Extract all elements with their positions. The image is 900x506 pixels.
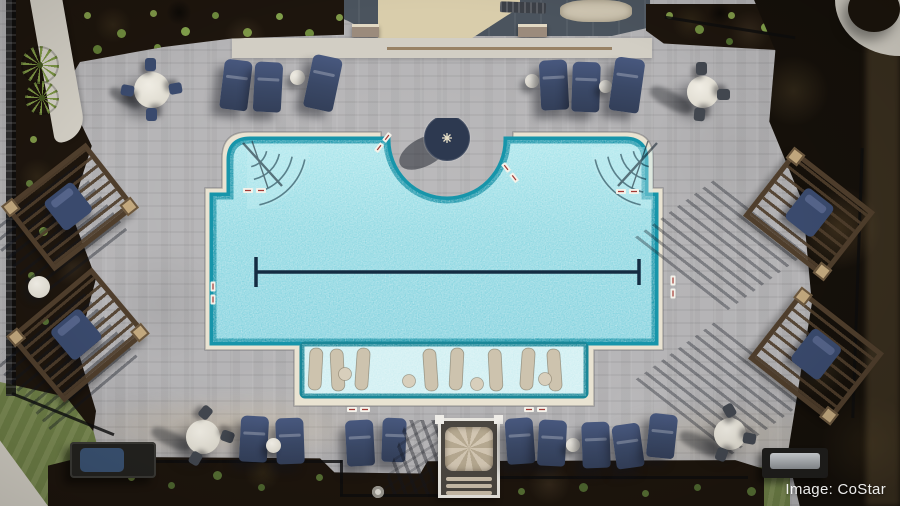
patio-chair — [693, 108, 705, 122]
lounge-chair — [239, 415, 269, 462]
cabana-bench — [446, 491, 492, 495]
patio-chair — [696, 62, 707, 75]
lounge-chair — [345, 419, 375, 466]
table-centerpiece — [442, 133, 452, 143]
bench — [500, 1, 546, 14]
patio-chair — [146, 108, 157, 121]
side-table — [290, 70, 305, 85]
patio-chair — [742, 432, 757, 445]
lounge-chair — [571, 62, 601, 113]
stone-patch — [560, 0, 632, 22]
fire-table — [394, 118, 470, 177]
swimming-pool — [190, 118, 680, 418]
watermark: Image: CoStar — [785, 481, 886, 498]
palm-plant — [25, 81, 59, 115]
pergola-sofa — [43, 181, 94, 232]
shrubs — [84, 12, 91, 19]
patio-chair — [145, 58, 156, 71]
side-table — [28, 276, 50, 298]
shrubs — [30, 136, 37, 143]
lounge-chair — [537, 419, 567, 466]
side-table — [566, 438, 580, 452]
cabana — [438, 418, 500, 498]
cabana-bench — [446, 484, 492, 488]
round-table — [186, 420, 220, 454]
grill-covered — [70, 442, 156, 478]
pergola-sofa — [790, 327, 843, 381]
lounge-chair — [253, 61, 284, 112]
fence-bottom — [470, 476, 748, 479]
lounge-chair — [581, 422, 611, 469]
side-table — [266, 438, 281, 453]
cabana-bench — [446, 477, 492, 481]
pergola-sofa — [784, 186, 835, 238]
lounge-chair — [611, 422, 645, 469]
round-table — [687, 76, 719, 108]
pergola-sofa — [49, 307, 103, 361]
lounge-chair — [539, 59, 570, 110]
patio-chair — [717, 89, 730, 100]
cabana-canopy — [445, 427, 493, 471]
fence-bottom — [340, 460, 343, 496]
deck-drain — [372, 486, 384, 498]
round-table — [714, 418, 746, 450]
grill-stainless — [762, 448, 828, 478]
brick-pillar — [352, 24, 379, 37]
palm-plant — [21, 46, 59, 84]
round-table — [134, 72, 170, 108]
tanning-ledge — [302, 344, 586, 396]
lounge-chair — [504, 417, 535, 465]
side-table — [525, 74, 539, 88]
pool-aerial-photo: Image: CoStar — [0, 0, 900, 506]
brick-pillar — [518, 24, 547, 37]
patio-chair — [120, 84, 135, 97]
patio-chair — [168, 82, 183, 95]
concrete-border-band — [232, 38, 652, 58]
lounge-chair — [646, 413, 678, 460]
